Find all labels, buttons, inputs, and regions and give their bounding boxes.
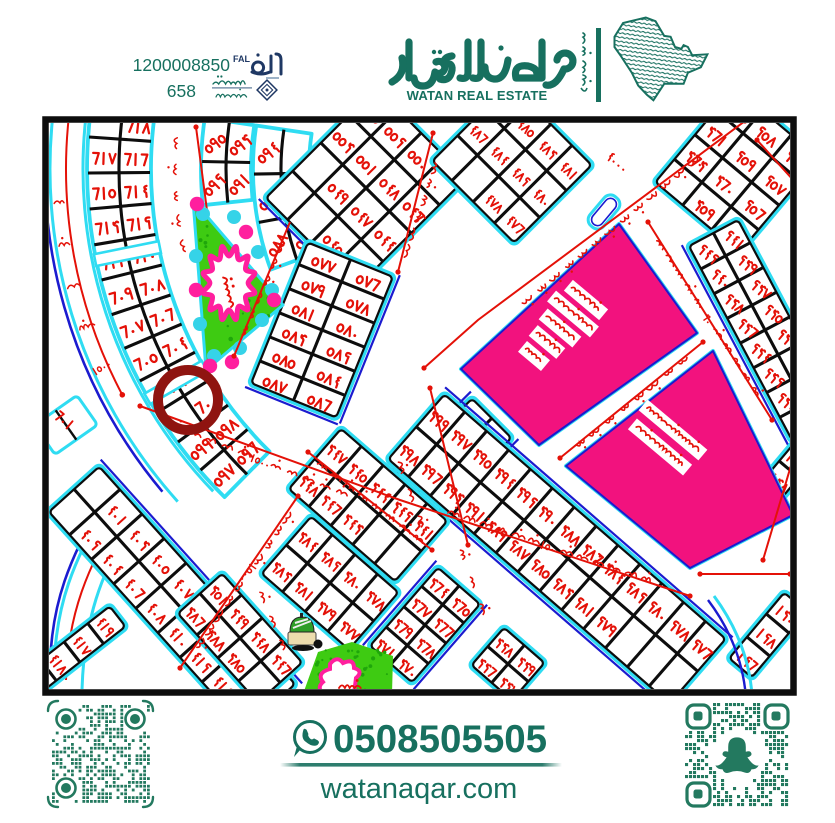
svg-text:1200008850: 1200008850 — [133, 55, 231, 75]
svg-text:WATAN REAL ESTATE: WATAN REAL ESTATE — [407, 88, 548, 103]
svg-text:watanaqar.com: watanaqar.com — [320, 773, 518, 805]
svg-text:FAL: FAL — [233, 54, 251, 64]
svg-text:0508505505: 0508505505 — [333, 718, 547, 761]
svg-text:658: 658 — [167, 81, 196, 101]
